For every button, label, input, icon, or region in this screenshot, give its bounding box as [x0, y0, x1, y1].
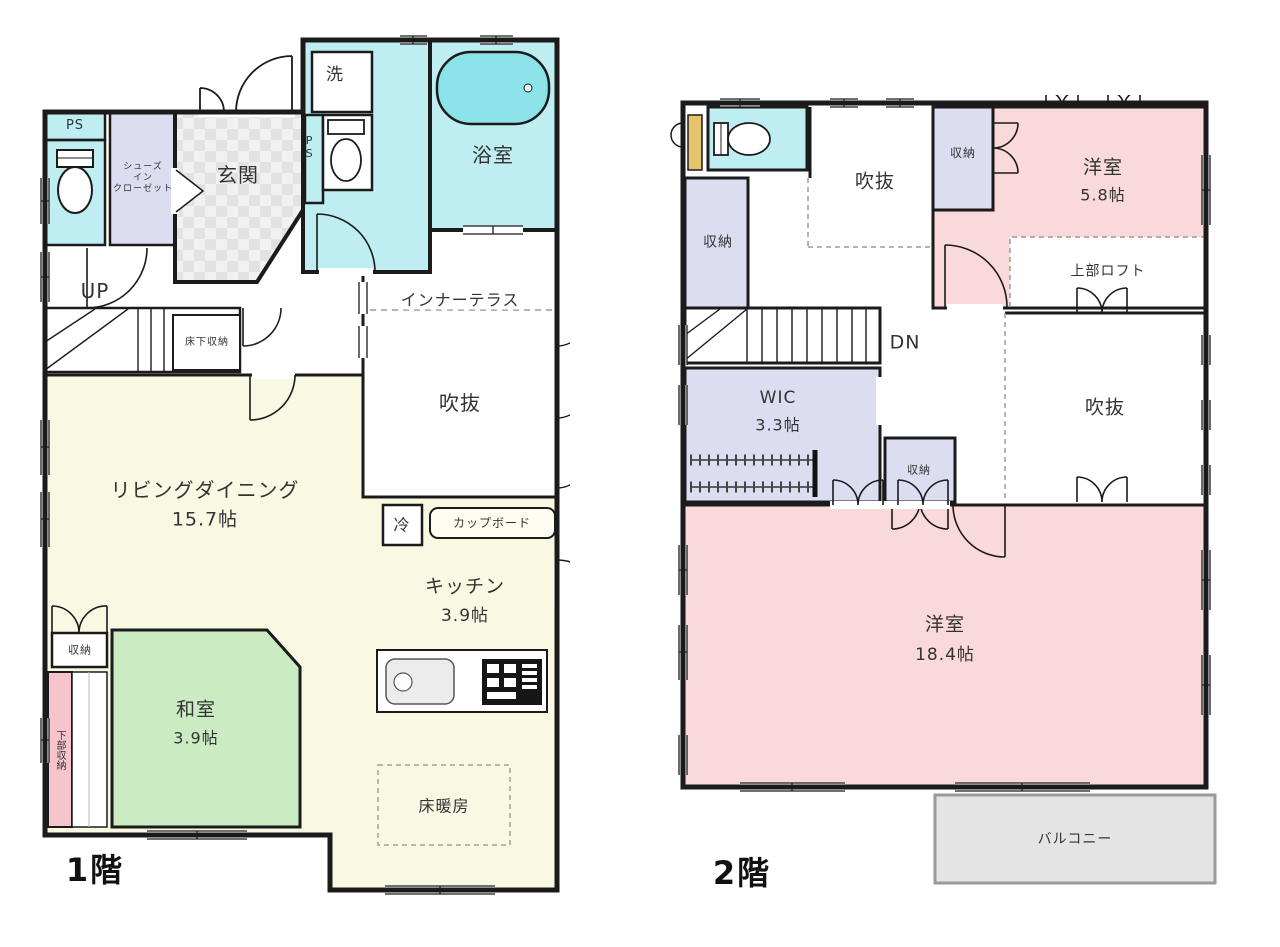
stove-icon: [482, 659, 542, 705]
label-balcony: バルコニー: [1038, 832, 1113, 849]
label-fridge: 冷: [393, 515, 410, 534]
label-genkan: 玄関: [217, 163, 259, 187]
label-kitchen: キッチン: [425, 576, 505, 599]
toilet2f-icon: [714, 123, 770, 155]
label-void-right: 吹抜: [1085, 397, 1125, 420]
floor1-title: 1階: [66, 851, 124, 889]
label-void-1f: 吹抜: [439, 391, 481, 415]
floor2-title: 2階: [713, 854, 771, 892]
floor2-plan: 収納 吹抜 収納 洋室 5.8帖 上部ロフト DN WIC 3.3帖 収納 吹抜…: [670, 95, 1260, 905]
label-kitchen-size: 3.9帖: [441, 606, 489, 626]
sink-drain-icon: [394, 673, 412, 691]
floor1-plan: PS シューズ イン クローゼット 玄関 洗 PS 浴室 インナーテラス 吹抜 …: [40, 30, 570, 910]
label-bedroom-small-size: 5.8帖: [1080, 185, 1125, 204]
label-bedroom-large: 洋室: [925, 614, 965, 637]
label-living-size: 15.7帖: [172, 509, 238, 532]
label-wic-size: 3.3帖: [755, 415, 800, 434]
label-bedroom-small: 洋室: [1083, 157, 1123, 180]
vanity-cabinet: [688, 115, 702, 170]
label-closet-top: 収納: [950, 146, 976, 160]
label-bedroom-large-size: 18.4帖: [915, 645, 975, 665]
label-washitsu-size: 3.9帖: [173, 728, 218, 747]
label-shoes-closet: シューズ イン クローゼット: [113, 162, 173, 194]
label-loft: 上部ロフト: [1071, 264, 1146, 281]
label-up: UP: [81, 279, 110, 303]
label-living: リビングダイニング: [111, 478, 300, 502]
label-underfloor-storage: 床下収納: [185, 337, 229, 349]
label-inner-terrace: インナーテラス: [398, 290, 523, 309]
label-bath: 浴室: [472, 143, 514, 167]
toilet-icon: [57, 150, 93, 213]
label-closet-left: 収納: [703, 235, 733, 252]
bathtub-drain-icon: [524, 84, 532, 92]
label-washitsu: 和室: [176, 699, 216, 722]
toilet2-icon: [328, 120, 364, 181]
label-floor-heating: 床暖房: [418, 796, 469, 815]
label-ps-side: PS: [302, 134, 315, 160]
label-closet-mid: 収納: [907, 463, 931, 476]
label-laundry: 洗: [326, 65, 344, 85]
label-void-top: 吹抜: [855, 171, 895, 194]
floor2-plan-graphics: [670, 95, 1260, 905]
label-dn: DN: [890, 332, 921, 355]
floorplan-page: { "document": { "type": "madori-floorpla…: [0, 0, 1280, 947]
label-lower-storage: 下部収納: [53, 730, 65, 770]
label-wic: WIC: [760, 388, 797, 408]
label-cupboard: カップボード: [453, 516, 531, 530]
label-ps-top: PS: [66, 118, 84, 134]
staircase-down: [685, 308, 866, 363]
label-closet-1f: 収納: [68, 643, 92, 656]
